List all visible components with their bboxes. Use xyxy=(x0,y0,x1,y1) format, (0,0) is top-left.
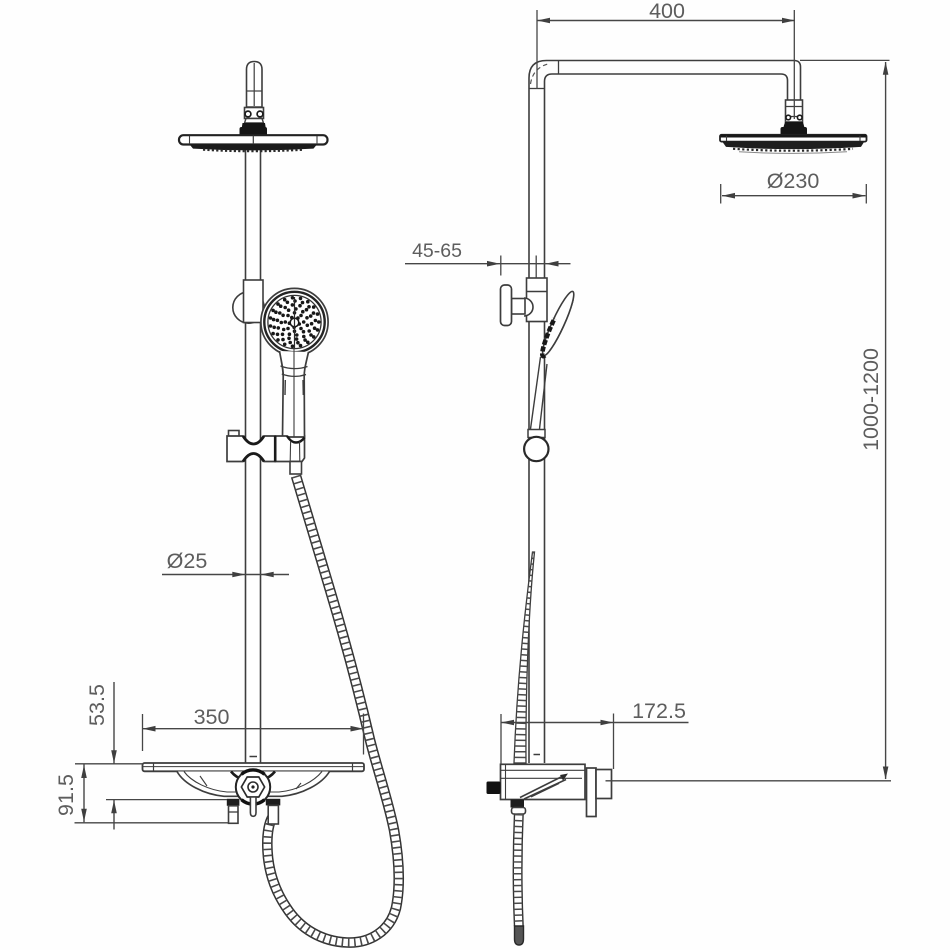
svg-text:45-65: 45-65 xyxy=(412,240,462,262)
svg-text:400: 400 xyxy=(649,0,685,23)
svg-text:1000-1200: 1000-1200 xyxy=(859,348,883,451)
svg-text:91.5: 91.5 xyxy=(54,774,78,816)
svg-text:Ø230: Ø230 xyxy=(767,169,820,193)
svg-text:53.5: 53.5 xyxy=(85,684,109,726)
svg-text:Ø25: Ø25 xyxy=(167,549,208,573)
svg-text:350: 350 xyxy=(194,705,230,729)
svg-text:172.5: 172.5 xyxy=(632,699,686,723)
